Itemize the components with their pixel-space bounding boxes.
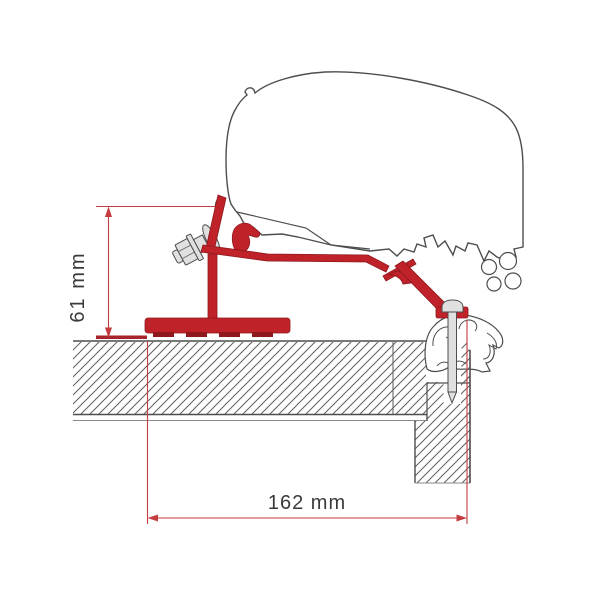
adapter-installation-diagram: 61 mm 162 mm [0,0,600,600]
wall-hatch-overlay [462,343,470,381]
bracket-foot-plate [145,318,290,333]
dimension-162mm-label: 162 mm [268,492,346,514]
bracket-post [208,254,217,320]
awning-case-extrusion-circles [482,253,522,292]
bracket-arm [206,195,226,251]
front-bracket-assembly [96,195,389,339]
screw-head [442,300,463,312]
roof-cross-section [73,341,470,483]
arrow-right-icon [457,515,468,522]
roof-hatch [73,342,427,415]
rear-strut [395,261,448,313]
diagram-canvas: 61 mm 162 mm [0,0,600,600]
screw-shaft [448,312,457,392]
dimension-61mm: 61 mm [67,207,112,339]
arrow-up-icon [105,207,112,218]
awning-case-outline [226,72,523,262]
bracket-claw [232,223,260,251]
foot-base-lip [96,336,147,340]
dimension-61mm-label: 61 mm [67,251,89,322]
arrow-left-icon [148,515,159,522]
